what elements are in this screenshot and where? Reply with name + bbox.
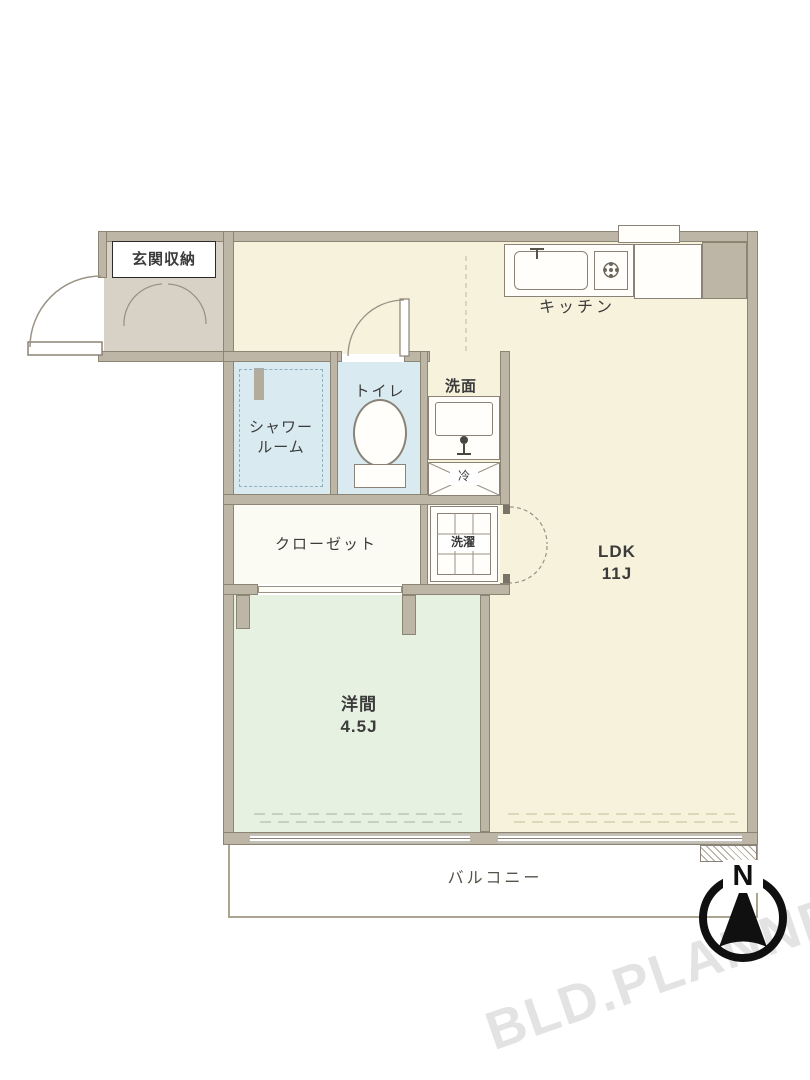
room-ldk	[508, 351, 748, 833]
toilet-tank	[354, 464, 406, 488]
wall-closet-bottom-right	[402, 584, 510, 595]
wall-pillar-right	[402, 595, 416, 635]
room-ldk-lower-extension	[490, 595, 510, 832]
closet-label: クローゼット	[246, 535, 406, 555]
sliding-door	[258, 586, 402, 593]
room-ldk-doorway	[500, 505, 510, 583]
wall-entrance-bottom	[98, 351, 233, 362]
floor-plan: 玄関収納 キッチン シャワー ルーム トイレ 洗面 冷 クローゼット 洗濯 LD…	[0, 0, 810, 1080]
washbasin-bowl	[435, 402, 493, 436]
wall-shower-toilet	[330, 351, 338, 505]
wall-main-left	[223, 231, 234, 845]
kitchen-appliance-space	[634, 244, 702, 299]
wall-western-right	[480, 595, 490, 832]
refrigerator-label: 冷	[450, 469, 478, 485]
kitchen-stove	[594, 251, 628, 290]
shower-room-label-line1: シャワー	[231, 418, 331, 438]
shower-room-label: シャワー ルーム	[231, 418, 331, 457]
western-room-label-name: 洋間	[309, 694, 409, 716]
balcony-label: バルコニー	[395, 869, 595, 890]
entrance-storage-label-box: 玄関収納	[112, 241, 216, 278]
wall-bottom	[223, 832, 758, 845]
toilet-label: トイレ	[330, 382, 430, 402]
wall-right	[747, 231, 758, 845]
wall-basin-right	[500, 351, 510, 505]
kitchen-label: キッチン	[517, 298, 637, 319]
wall-closet-bottom-left	[223, 584, 258, 595]
laundry-label: 洗濯	[438, 535, 488, 551]
western-room-label-size: 4.5J	[309, 716, 409, 738]
ldk-label: LDK 11J	[567, 541, 667, 585]
kitchen-sink	[514, 251, 588, 290]
wall-pillar-left	[236, 595, 250, 629]
wall-top-right-block	[702, 242, 747, 299]
compass-north-label: N	[723, 860, 763, 893]
western-room-label: 洋間 4.5J	[309, 694, 409, 738]
toilet-bowl	[353, 399, 407, 467]
washbasin-label: 洗面	[421, 377, 501, 397]
wall-wet-top-left	[223, 351, 342, 362]
shower-room-label-line2: ルーム	[231, 438, 331, 458]
entrance-door	[28, 276, 102, 355]
ldk-label-name: LDK	[567, 541, 667, 563]
kitchen-top-notch	[618, 225, 680, 243]
ldk-label-size: 11J	[567, 563, 667, 585]
wall-entrance-left	[98, 231, 107, 278]
